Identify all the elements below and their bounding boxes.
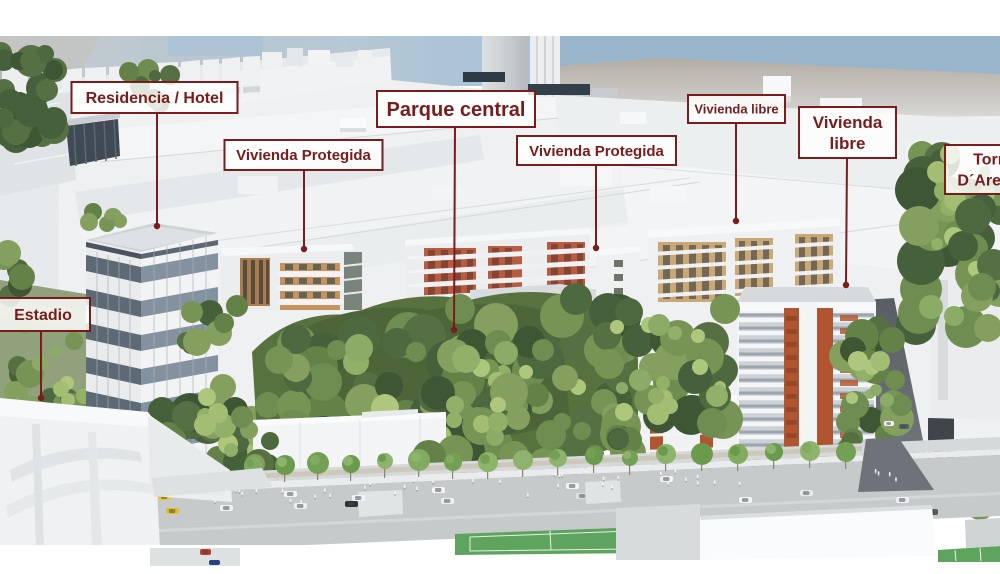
svg-text:D´Arenys: D´Arenys	[957, 173, 1000, 190]
svg-text:Vivienda Protegida: Vivienda Protegida	[529, 143, 664, 160]
svg-text:Torre: Torre	[973, 152, 1000, 169]
svg-text:Vivienda: Vivienda	[813, 113, 883, 132]
svg-text:Vivienda libre: Vivienda libre	[694, 102, 778, 117]
svg-text:Vivienda Protegida: Vivienda Protegida	[236, 147, 371, 164]
svg-text:libre: libre	[830, 134, 866, 153]
svg-text:Residencia / Hotel: Residencia / Hotel	[86, 90, 224, 107]
svg-text:Estadio: Estadio	[14, 307, 72, 324]
svg-text:Parque central: Parque central	[387, 99, 526, 121]
